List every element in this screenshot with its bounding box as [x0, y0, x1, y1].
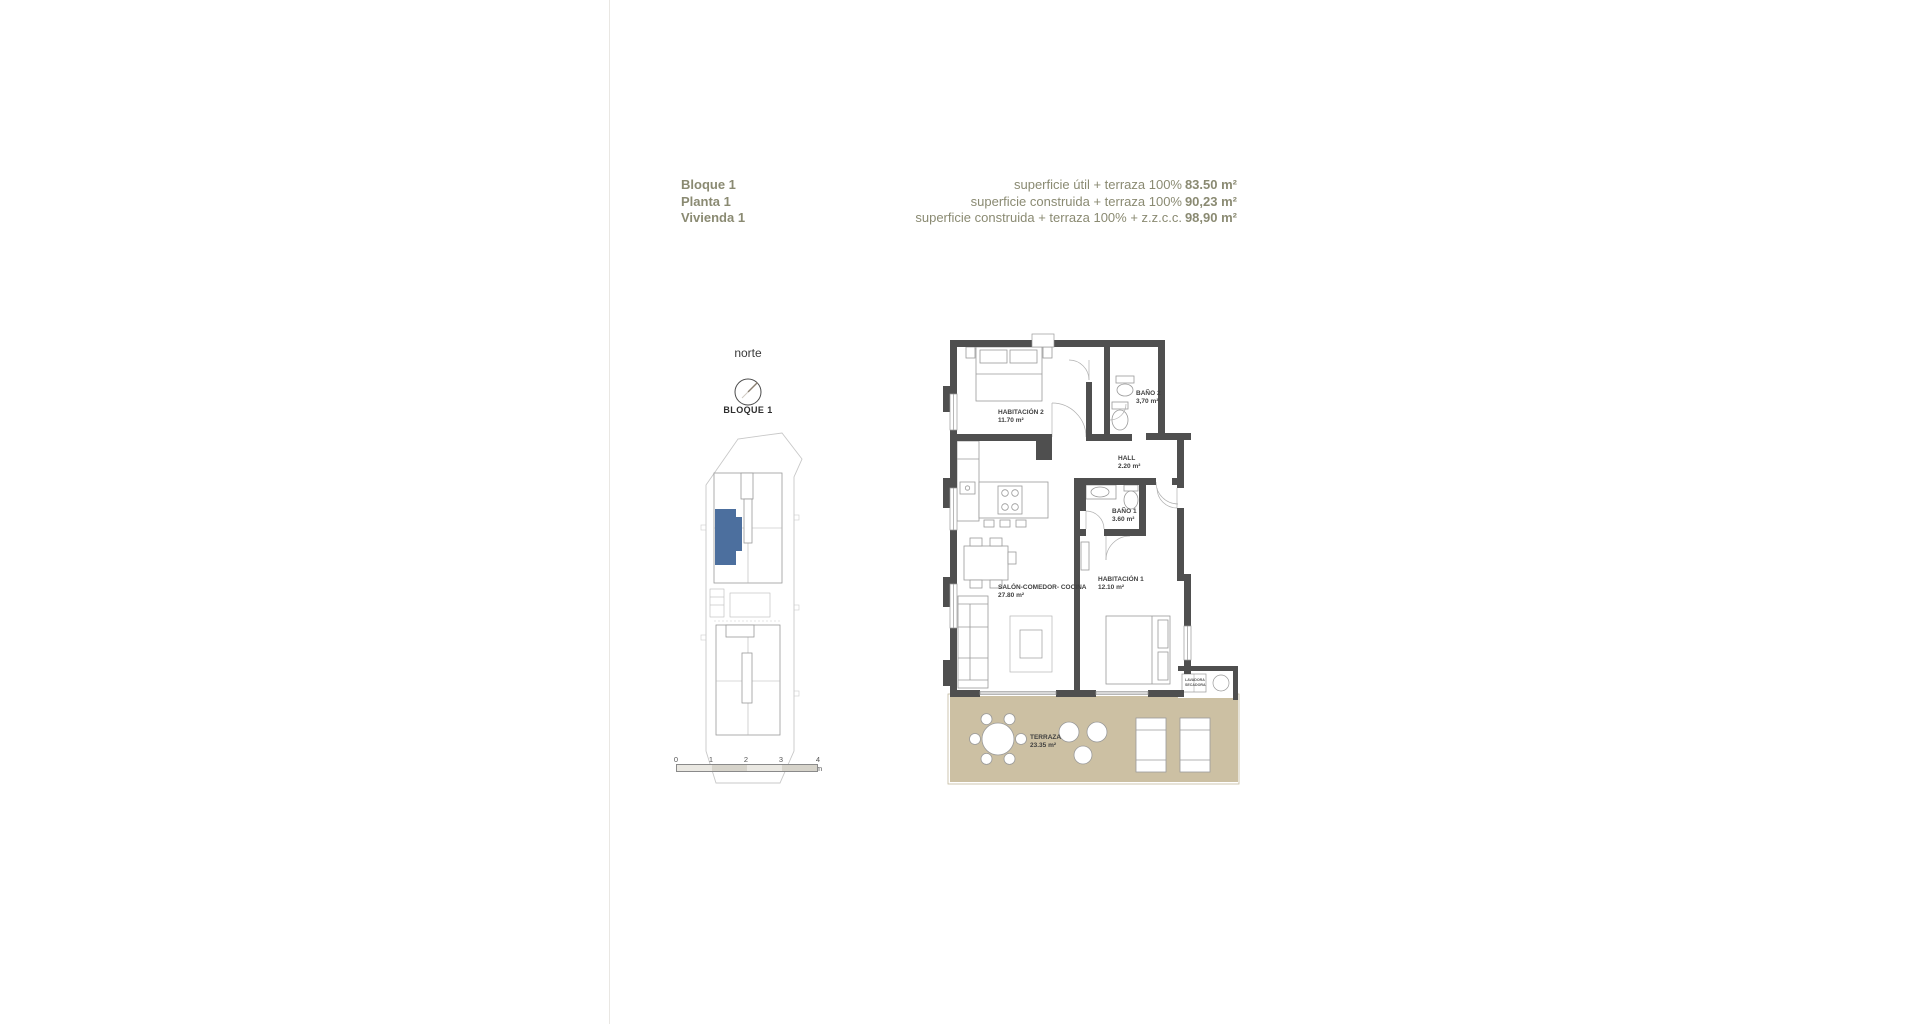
room-label-habitacion2: HABITACIÓN 2 11.70 m²	[998, 409, 1044, 425]
scale-bar: 0 1 2 3 4 m	[676, 755, 822, 773]
page-fold-line	[609, 0, 610, 1024]
scale-tick: 3	[779, 755, 783, 764]
surface-label: superficie construida + terraza 100%	[700, 194, 1182, 211]
surface-label: superficie construida + terraza 100% + z…	[700, 210, 1182, 227]
scale-tick: 1	[709, 755, 713, 764]
surface-table: superficie útil + terraza 100% 83.50 m² …	[700, 177, 1237, 227]
scale-tick: 0	[674, 755, 678, 764]
floorplan-drawing	[940, 330, 1240, 805]
room-label-salon: SALÓN-COMEDOR- COCINA 27.80 m²	[998, 584, 1086, 600]
surface-value: 90,23 m²	[1182, 194, 1237, 211]
bed-icon	[966, 347, 1052, 401]
floorplan-sheet: Bloque 1 Planta 1 Vivienda 1 superficie …	[0, 0, 1920, 1024]
scale-tick: 2	[744, 755, 748, 764]
room-label-habitacion1: HABITACIÓN 1 12.10 m²	[1098, 576, 1144, 592]
apartment-floorplan: HABITACIÓN 2 11.70 m² BAÑO 2 3,70 m² HAL…	[940, 330, 1240, 805]
surface-label: superficie útil + terraza 100%	[700, 177, 1182, 194]
siteplan-block-label: BLOQUE 1	[698, 405, 798, 415]
room-label-bano2: BAÑO 2 3,70 m²	[1136, 390, 1161, 406]
utility-label: LAVADORA SECADORA	[1185, 678, 1206, 687]
surface-value: 98,90 m²	[1182, 210, 1237, 227]
surface-row: superficie construida + terraza 100% 90,…	[700, 194, 1237, 211]
surface-row: superficie útil + terraza 100% 83.50 m²	[700, 177, 1237, 194]
scale-bar-segments	[676, 764, 818, 772]
room-label-terraza: TERRAZA 23.35 m²	[1030, 734, 1061, 750]
sofa-icon	[958, 596, 988, 688]
siteplan-locator	[690, 425, 840, 790]
room-label-bano1: BAÑO 1 3.60 m²	[1112, 508, 1137, 524]
north-label: norte	[698, 346, 798, 360]
room-label-hall: HALL 2.20 m²	[1118, 455, 1140, 471]
surface-row: superficie construida + terraza 100% + z…	[700, 210, 1237, 227]
boiler-icon	[1213, 675, 1229, 691]
surface-value: 83.50 m²	[1182, 177, 1237, 194]
lower-building	[716, 625, 780, 735]
